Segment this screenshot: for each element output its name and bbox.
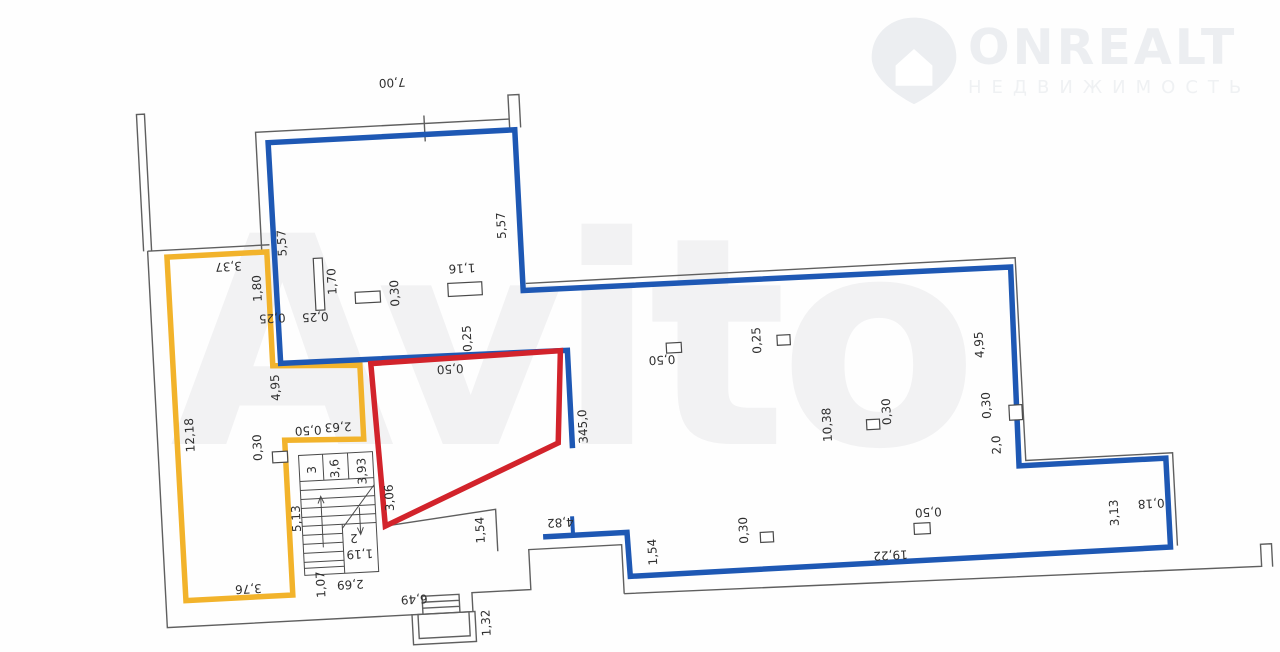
dimension-label: 4,82 bbox=[547, 515, 574, 530]
chimney-notch bbox=[508, 94, 521, 128]
dimension-label: 0,30 bbox=[250, 434, 265, 461]
porch-inner bbox=[418, 612, 470, 639]
onrealt-pin-icon bbox=[868, 14, 960, 106]
dimension-label: 3,06 bbox=[382, 484, 397, 511]
column-marker bbox=[760, 532, 774, 543]
dimension-label: 5,57 bbox=[494, 212, 509, 239]
dimension-label: 2,69 bbox=[337, 577, 364, 592]
onrealt-logo: ONREALT НЕДВИЖИМОСТЬ bbox=[868, 14, 1268, 106]
dimension-label: 6,49 bbox=[400, 591, 427, 606]
dimension-label: 3,93 bbox=[354, 458, 369, 485]
dimension-label: 4,95 bbox=[268, 374, 283, 401]
right-outer-wall bbox=[526, 250, 1178, 579]
dimension-label: 0,18 bbox=[1137, 496, 1164, 511]
dimension-label: 0,30 bbox=[387, 280, 402, 307]
dimension-label: 0,30 bbox=[736, 517, 751, 544]
dimension-label: 5,13 bbox=[289, 505, 304, 532]
floor-plan-page: Avito bbox=[0, 0, 1280, 652]
column-marker bbox=[355, 291, 381, 303]
stair-treads-left bbox=[303, 533, 345, 568]
column-marker bbox=[777, 335, 791, 346]
dimension-label: 1,07 bbox=[313, 571, 328, 598]
dimension-label: 0,50 bbox=[648, 352, 675, 367]
stair-arrow-up bbox=[318, 496, 327, 547]
dimension-label: 0,25 bbox=[302, 309, 329, 324]
dimension-label: 0,25 bbox=[749, 327, 764, 354]
top-wall-tick bbox=[424, 115, 425, 141]
column-marker bbox=[313, 258, 325, 310]
dimension-label: 1,54 bbox=[645, 538, 660, 565]
dimension-label: 3 bbox=[305, 466, 319, 474]
column-marker bbox=[272, 451, 288, 463]
dimension-label: 3,37 bbox=[215, 259, 242, 274]
dimension-label: 1,70 bbox=[324, 268, 339, 295]
dimension-label: 5,57 bbox=[274, 229, 289, 256]
column-marker bbox=[666, 342, 682, 353]
dimension-label: 0,30 bbox=[879, 398, 894, 425]
dimension-label: 1,19 bbox=[346, 546, 373, 561]
dimension-label: 19,22 bbox=[873, 547, 908, 563]
dimension-label: 1,54 bbox=[472, 516, 487, 543]
onrealt-brand-text: ONREALT bbox=[968, 14, 1251, 83]
dimension-label: 3,76 bbox=[235, 581, 262, 596]
dimension-label: 4,95 bbox=[971, 331, 986, 358]
dimension-label: 7,00 bbox=[378, 75, 405, 90]
dimension-label: 0,30 bbox=[979, 392, 994, 419]
column-marker bbox=[914, 523, 931, 535]
porch-outer bbox=[412, 612, 476, 645]
column-marker bbox=[448, 282, 483, 297]
column-marker bbox=[866, 419, 880, 430]
dimension-label: 1,16 bbox=[448, 261, 475, 276]
zone-red-outline bbox=[371, 351, 569, 527]
wall-niche-marker bbox=[1009, 405, 1023, 421]
dimension-label: 12,18 bbox=[182, 418, 198, 453]
dimension-label: 0,25 bbox=[459, 325, 474, 352]
dimension-label: 0,50 bbox=[295, 423, 322, 438]
dimension-label: 2,0 bbox=[989, 435, 1004, 455]
dimension-label: 0,50 bbox=[915, 504, 942, 519]
dimension-label: 10,38 bbox=[819, 407, 835, 442]
stair-treads-full bbox=[300, 487, 376, 527]
onrealt-subtitle-text: НЕДВИЖИМОСТЬ bbox=[968, 77, 1251, 98]
dimension-label: 1,32 bbox=[478, 609, 493, 636]
stair-arrow-down bbox=[356, 507, 363, 534]
dimension-label: 2 bbox=[350, 531, 358, 545]
dimension-label: 0,25 bbox=[259, 311, 286, 326]
dimension-label: 1,80 bbox=[250, 275, 265, 302]
dimension-label: 0,50 bbox=[436, 361, 463, 376]
bottom-step-wall bbox=[470, 545, 625, 612]
dimension-label: 345,0 bbox=[575, 409, 591, 444]
dimension-label: 3,13 bbox=[1106, 499, 1121, 526]
left-wall bbox=[136, 114, 151, 251]
dimension-label: 2,63 bbox=[324, 419, 351, 434]
dimension-label: 3,6 bbox=[327, 459, 342, 479]
